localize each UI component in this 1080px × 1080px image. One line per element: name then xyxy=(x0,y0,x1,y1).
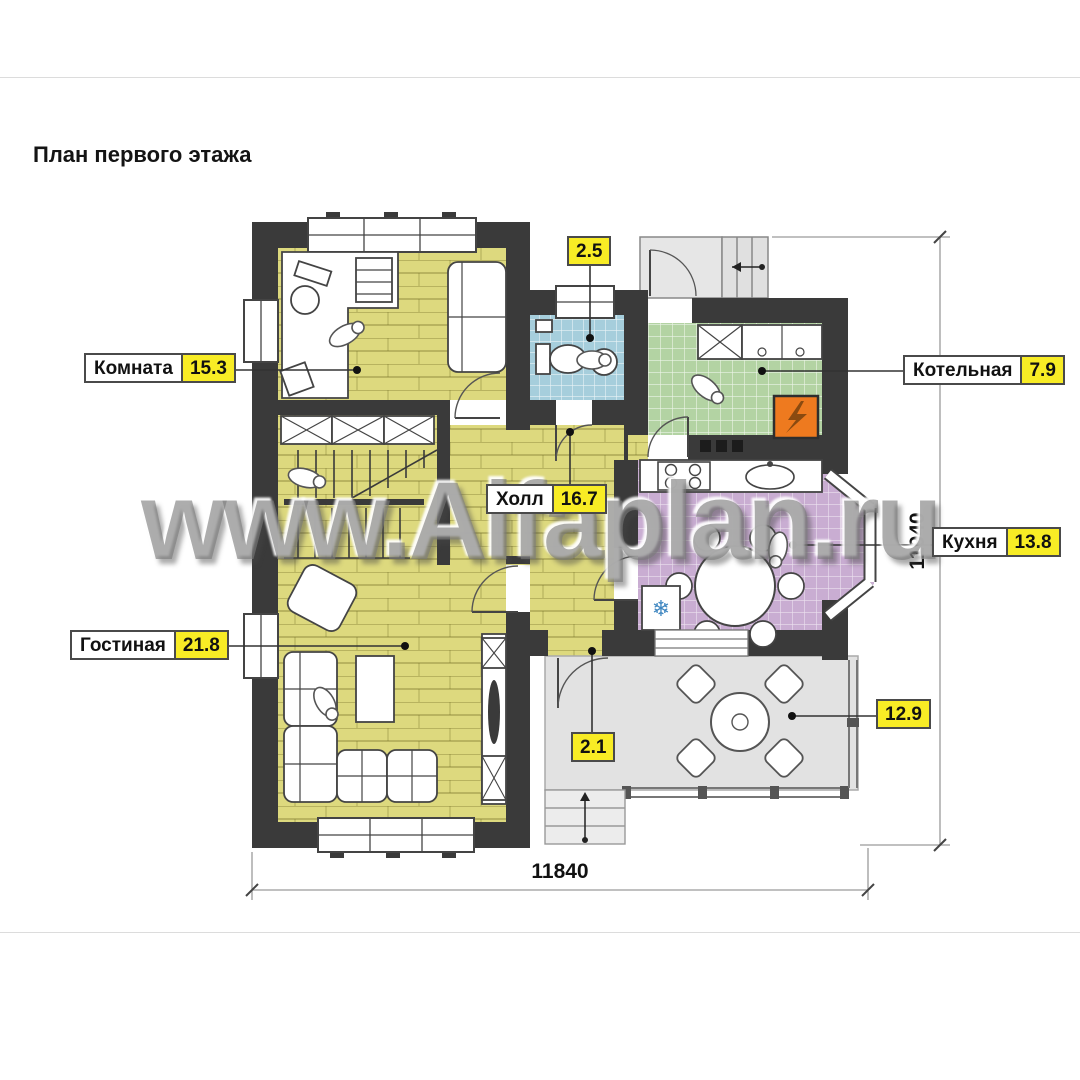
room-area: 7.9 xyxy=(1020,355,1064,385)
room-name: Холл xyxy=(486,484,554,514)
dimension-depth-text: 11940 xyxy=(906,512,929,569)
room-label-holl: Холл 16.7 xyxy=(486,484,607,514)
room-area: 21.8 xyxy=(174,630,229,660)
room-area: 15.3 xyxy=(181,353,236,383)
coffee-table xyxy=(356,656,394,722)
room-label-gostinaya: Гостиная 21.8 xyxy=(70,630,229,660)
floor-plan-svg: ❄ xyxy=(0,0,1080,1080)
room-area: 12.9 xyxy=(876,699,931,729)
toilet-tank xyxy=(536,344,550,374)
room-name: Котельная xyxy=(903,355,1022,385)
terrace-steps xyxy=(545,790,625,844)
desk-chair xyxy=(291,286,319,314)
room-name: Комната xyxy=(84,353,183,383)
room-label-komnata: Комната 15.3 xyxy=(84,353,236,383)
shelf xyxy=(356,258,392,302)
room-label-kotelnaya: Котельная 7.9 xyxy=(903,355,1065,385)
room-area: 2.1 xyxy=(571,732,615,762)
room-area: 13.8 xyxy=(1006,527,1061,557)
room-label-kuhnya: Кухня 13.8 xyxy=(932,527,1061,557)
area-label-terrasa: 12.9 xyxy=(878,699,931,729)
floor-plan-page: План первого этажа xyxy=(0,0,1080,1080)
boiler-unit xyxy=(774,396,818,438)
dimension-width-text: 11840 xyxy=(531,860,588,883)
kitchen-terrace-steps xyxy=(655,630,748,656)
washer-small xyxy=(536,320,552,332)
dining-table xyxy=(695,546,775,626)
fridge: ❄ xyxy=(642,586,680,630)
entrance-porch xyxy=(640,237,768,298)
wardrobe xyxy=(281,416,434,444)
room-name: Гостиная xyxy=(70,630,176,660)
snowflake-icon: ❄ xyxy=(652,596,670,621)
terrace-table xyxy=(711,693,769,751)
area-label-tambur: 2.1 xyxy=(573,732,615,762)
room-area: 16.7 xyxy=(552,484,607,514)
stove xyxy=(658,462,710,490)
area-label-sanuzel: 2.5 xyxy=(569,236,611,266)
tv-unit xyxy=(482,634,506,804)
room-name: Кухня xyxy=(932,527,1008,557)
room-area: 2.5 xyxy=(567,236,611,266)
